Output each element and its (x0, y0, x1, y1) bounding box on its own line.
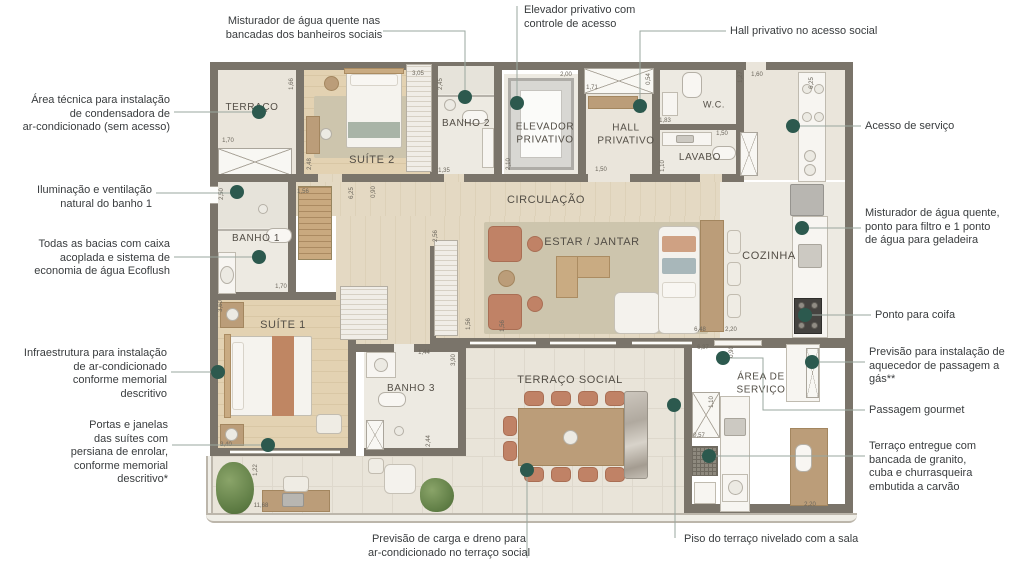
room-label-wc: W.C. (703, 99, 725, 110)
item-servico-5 (804, 150, 816, 162)
annotation-acesso-de-servico: Acesso de serviço (865, 120, 954, 134)
cadeira-t1 (524, 391, 544, 406)
armchair-1 (488, 226, 522, 262)
annotation-ponto-para-coifa: Ponto para coifa (875, 309, 955, 323)
basket-suite2 (324, 76, 339, 91)
wardrobe-suite1 (340, 286, 388, 340)
chair-jantar-3 (727, 294, 741, 318)
closet-area (692, 392, 720, 438)
poltrona-terraco (384, 464, 416, 494)
dimension-label: 1,83 (659, 118, 671, 124)
annotation-bacias-ecoflush: Todas as bacias com caixa acoplada e sis… (34, 238, 170, 279)
cadeira-t2 (551, 391, 571, 406)
dimension-label: 1,56 (297, 189, 309, 195)
wall-banho2-elevador (494, 62, 502, 176)
dimension-label: 1,35 (438, 168, 450, 174)
dimension-label: 1,60 (751, 72, 763, 78)
cushion-3 (662, 282, 696, 298)
dimension-label: 2,45 (438, 78, 444, 90)
sink-wc (662, 92, 678, 116)
wall-banho3-right (458, 344, 466, 456)
window-suite1 (230, 450, 340, 454)
shower-banho1 (218, 182, 288, 228)
dimension-label: 2,44 (426, 435, 432, 447)
closet-lavabo (740, 132, 758, 176)
room-label-banho2: BANHO 2 (442, 118, 490, 131)
storage-terraco (218, 148, 292, 176)
closet-roupa (298, 186, 332, 260)
pouf-2 (527, 296, 543, 312)
wall-area-left (684, 348, 692, 508)
door-servico (746, 62, 766, 70)
room-label-lavabo: LAVABO (679, 152, 721, 165)
door-suite2 (318, 174, 342, 182)
chair-jantar-1 (727, 230, 741, 254)
dimension-label: 6,25 (349, 187, 355, 199)
dimension-label: 1,70 (275, 284, 287, 290)
cadeira-b4 (605, 467, 625, 482)
bench-hall (588, 96, 638, 109)
dimension-label: 0,90 (729, 346, 735, 358)
annotation-carga-dreno-ar-condicionado: Previsão de carga e dreno para ar-condic… (368, 533, 530, 560)
dimension-label: 1,22 (253, 464, 259, 476)
bancada-marmore (624, 391, 648, 479)
showerhead-banho1 (258, 204, 268, 214)
dimension-label: 3,40 (220, 442, 232, 448)
annotation-iluminacao-ventilacao-banho1: Iluminação e ventilação natural do banho… (37, 184, 152, 211)
sink-banho2 (444, 99, 456, 111)
desk-suite2 (306, 116, 320, 154)
cadeira-l1 (503, 416, 517, 436)
dimension-label: 1,27 (738, 71, 744, 83)
pouf-1 (527, 236, 543, 252)
pouf-terraco (368, 458, 384, 474)
railing-left (206, 456, 213, 516)
cuba-churrasqueira (694, 482, 716, 504)
showerhead-banho3 (394, 426, 404, 436)
dimension-label: 2,00 (560, 72, 572, 78)
lazy-susan (563, 430, 578, 445)
wall-left (210, 62, 218, 456)
side-table-estar (498, 270, 515, 287)
item-servico-3 (802, 112, 812, 122)
window-banho1 (210, 186, 218, 204)
dimension-label: 2,56 (433, 230, 439, 242)
lamp-suite1-a (226, 308, 239, 321)
sofa-chaise (614, 292, 660, 334)
wall-row1-bottom (210, 174, 744, 182)
chair-suite2 (320, 128, 332, 140)
room-label-suite1: SUÍTE 1 (260, 319, 306, 333)
dimension-label: 6,37 (697, 345, 709, 351)
annotation-hall-privativo: Hall privativo no acesso social (730, 25, 877, 39)
room-label-banho1: BANHO 1 (232, 233, 280, 246)
room-label-circulacao: CIRCULAÇÃO (507, 194, 585, 208)
room-label-banho3: BANHO 3 (387, 383, 435, 396)
annotation-passagem-gourmet: Passagem gourmet (869, 404, 964, 418)
annotation-area-tecnica-condensadora: Área técnica para instalação de condensa… (23, 94, 170, 135)
wall-right (845, 62, 853, 514)
cadeira-b2 (551, 467, 571, 482)
dimension-label: 1,50 (716, 131, 728, 137)
throw-suite2 (348, 122, 400, 138)
cushion-1 (662, 236, 696, 252)
dimension-label: 1,50 (595, 167, 607, 173)
annotation-infraestrutura-ar-condicionado: Infraestrutura para instalação de ar-con… (24, 347, 167, 401)
window-estar-1 (470, 341, 536, 345)
sink-banho1 (220, 266, 234, 284)
room-label-terraco: TERRAÇO (225, 102, 278, 115)
shower-banho3 (366, 420, 384, 450)
burner-2 (811, 302, 818, 309)
wardrobe-suite2 (406, 64, 432, 172)
dimension-label: 1,71 (586, 85, 598, 91)
room-label-area-servico: ÁREA DE SERVIÇO (736, 372, 785, 397)
annotation-piso-nivelado: Piso do terraço nivelado com a sala (684, 533, 858, 547)
annotation-misturador-filtro-geladeira: Misturador de água quente, ponto para fi… (865, 207, 1000, 248)
dimension-label: 11,68 (254, 503, 269, 509)
cadeira-t3 (578, 391, 598, 406)
cuba-gourmet (795, 444, 812, 472)
door-lavabo (700, 174, 722, 182)
pillows-suite2 (350, 74, 398, 86)
shower-banho2 (438, 66, 494, 94)
lamp-suite1-b (225, 428, 238, 441)
aquecedor-painel (806, 348, 819, 398)
cushion-2 (662, 258, 696, 274)
dimension-label: 0,54 (646, 73, 652, 85)
room-label-estar-jantar: ESTAR / JANTAR (544, 236, 639, 250)
dimension-label: 0,90 (371, 186, 377, 198)
fridge (790, 184, 824, 216)
cadeira-b3 (578, 467, 598, 482)
annotation-misturador-banheiros-sociais: Misturador de água quente nas bancadas d… (226, 15, 383, 42)
room-label-cozinha: COZINHA (742, 250, 796, 264)
room-label-elevador: ELEVADOR PRIVATIVO (516, 122, 575, 147)
room-label-suite2: SUÍTE 2 (349, 154, 395, 168)
dimension-label: 3,60 (218, 300, 224, 312)
bench-suite1 (316, 414, 342, 434)
dimension-label: 1,85 (640, 101, 646, 113)
window-estar-3 (632, 341, 692, 345)
cadeira-t4 (605, 391, 625, 406)
item-servico-2 (814, 84, 824, 94)
headboard-suite1 (224, 334, 231, 418)
floor-servico-corredor (744, 70, 845, 180)
planta-1 (216, 462, 254, 514)
dimension-label: 1,70 (222, 138, 234, 144)
vanity-banho2 (482, 128, 494, 168)
annotation-elevador-privativo: Elevador privativo com controle de acess… (524, 4, 635, 31)
passagem-gourmet-bancada (714, 340, 762, 346)
dimension-label: 1,56 (466, 318, 472, 330)
sideboard-estar (434, 240, 458, 336)
dimension-label: 3,90 (451, 354, 457, 366)
floor-plan-page: TERRAÇOSUÍTE 2BANHO 2ELEVADOR PRIVATIVOH… (0, 0, 1024, 565)
burner-3 (798, 322, 805, 329)
chair-jantar-2 (727, 262, 741, 286)
door-banho2 (444, 174, 464, 182)
dining-table-estar (700, 220, 724, 332)
dimension-label: 0,57 (693, 433, 705, 439)
churrasqueira (692, 446, 718, 476)
coffee-table-b (556, 256, 578, 298)
tanque (724, 418, 746, 436)
dimension-label: 2,10 (506, 158, 512, 170)
dimension-label: 1,56 (500, 320, 506, 332)
pillows-suite1 (232, 342, 244, 410)
toilet-wc (682, 72, 702, 98)
annotation-churrasqueira-granito: Terraço entregue com bancada de granito,… (869, 440, 976, 494)
dimension-label: 1,10 (709, 396, 715, 408)
item-servico-6 (804, 164, 816, 176)
annotation-persiana-de-enrolar: Portas e janelas das suítes com persiana… (71, 419, 168, 487)
door-hall (588, 174, 630, 182)
laptop (282, 493, 304, 507)
dimension-label: 2,20 (804, 502, 816, 508)
wall-wc-lavabo (658, 124, 738, 130)
dimension-label: 2,50 (219, 188, 225, 200)
glass-banho2 (438, 95, 494, 97)
dimension-label: 2,48 (307, 158, 313, 170)
railing-bottom (206, 513, 857, 523)
room-label-terraco-social: TERRAÇO SOCIAL (517, 374, 623, 388)
dimension-label: 3,05 (412, 71, 424, 77)
window-estar-2 (550, 341, 616, 345)
sink-banho3 (374, 358, 388, 372)
lavadora-porta (728, 480, 743, 495)
cadeira-escrivaninha (283, 476, 309, 492)
cadeira-l2 (503, 441, 517, 461)
dimension-label: 6,25 (809, 77, 815, 89)
door-banho3 (394, 344, 414, 352)
burner-4 (811, 322, 818, 329)
annotation-aquecedor-passagem-gas: Previsão para instalação de aquecedor de… (869, 346, 1005, 387)
room-label-hall: HALL PRIVATIVO (597, 123, 654, 148)
planta-2 (420, 478, 454, 512)
wall-terraco-suite2 (296, 62, 304, 180)
dimension-label: 1,44 (418, 350, 430, 356)
cadeira-b1 (524, 467, 544, 482)
item-servico-4 (814, 112, 824, 122)
dimension-label: 2,20 (725, 327, 737, 333)
sink-cozinha (798, 244, 822, 268)
sink-lavabo (676, 135, 694, 143)
burner-1 (798, 302, 805, 309)
dimension-label: 1,66 (289, 78, 295, 90)
dimension-label: 1,10 (660, 160, 666, 172)
throw-suite1 (272, 336, 294, 416)
dimension-label: 6,48 (694, 327, 706, 333)
